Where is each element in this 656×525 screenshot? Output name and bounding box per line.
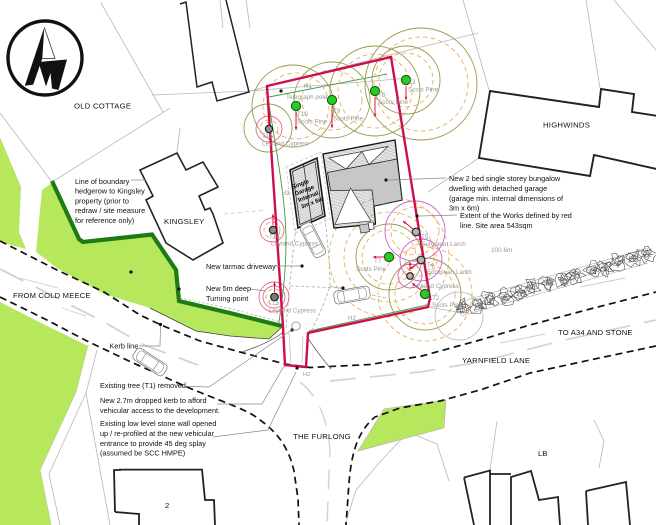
- svg-text:T9: T9: [333, 108, 341, 115]
- svg-text:Turning point: Turning point: [206, 294, 248, 303]
- svg-text:Leyland Cypress: Leyland Cypress: [412, 283, 459, 290]
- svg-text:(assumed be SCC HMPE): (assumed be SCC HMPE): [100, 449, 185, 458]
- svg-text:H2: H2: [303, 372, 310, 378]
- svg-text:T5: T5: [421, 234, 429, 241]
- svg-text:up / re-profiled at the new ve: up / re-profiled at the new vehicular: [100, 429, 215, 438]
- svg-text:T15: T15: [262, 133, 273, 140]
- svg-text:Line of boundary: Line of boundary: [75, 177, 130, 186]
- svg-text:redraw / site measure: redraw / site measure: [75, 206, 145, 215]
- svg-text:Scots Pine: Scots Pine: [333, 116, 364, 123]
- svg-text:Leyland Cypress: Leyland Cypress: [271, 241, 318, 248]
- svg-text:Scots Pine: Scots Pine: [378, 99, 409, 106]
- svg-text:T2: T2: [432, 295, 440, 302]
- svg-text:hedgerow to Kingsley: hedgerow to Kingsley: [75, 187, 145, 196]
- svg-text:for reference only): for reference only): [75, 216, 134, 225]
- svg-text:H1: H1: [304, 83, 313, 90]
- svg-text:100.6m: 100.6m: [491, 247, 512, 254]
- svg-text:Kerb line: Kerb line: [110, 342, 139, 351]
- svg-text:T14: T14: [269, 234, 280, 241]
- svg-text:HIGHWINDS: HIGHWINDS: [543, 121, 590, 130]
- svg-text:YARNFIELD LANE: YARNFIELD LANE: [462, 356, 530, 365]
- svg-text:Scots Pine: Scots Pine: [356, 266, 387, 273]
- svg-text:dwelling with detached garage: dwelling with detached garage: [449, 184, 547, 193]
- svg-text:Leyland Cypress: Leyland Cypress: [269, 308, 316, 315]
- svg-text:T3: T3: [408, 79, 416, 86]
- svg-text:Existing tree (T1) removed: Existing tree (T1) removed: [100, 381, 186, 390]
- svg-text:T10: T10: [297, 111, 308, 118]
- svg-text:TO A34 AND STONE: TO A34 AND STONE: [558, 328, 633, 337]
- svg-text:Existing low level stone wall: Existing low level stone wall opened: [100, 419, 216, 428]
- svg-text:H2: H2: [348, 315, 357, 322]
- svg-text:T7: T7: [374, 258, 382, 265]
- svg-text:European Larch: European Larch: [421, 241, 466, 248]
- svg-text:property (prior to: property (prior to: [75, 196, 129, 205]
- svg-text:LB: LB: [538, 449, 547, 458]
- svg-text:FROM COLD MEECE: FROM COLD MEECE: [13, 291, 91, 300]
- svg-text:New tarmac driveway: New tarmac driveway: [206, 262, 276, 271]
- svg-text:KINGSLEY: KINGSLEY: [164, 217, 204, 226]
- svg-text:entrance to provide 45 deg spl: entrance to provide 45 deg splay: [100, 439, 206, 448]
- svg-text:OLD COTTAGE: OLD COTTAGE: [74, 102, 131, 111]
- svg-text:New 2.7m dropped kerb to affor: New 2.7m dropped kerb to afford: [100, 396, 207, 405]
- svg-text:Extent of the Works defined by: Extent of the Works defined by red: [460, 211, 572, 220]
- svg-text:T4: T4: [427, 262, 435, 269]
- svg-text:Scots Pine: Scots Pine: [432, 302, 463, 309]
- svg-text:line. Site area 543sqm: line. Site area 543sqm: [460, 221, 533, 230]
- svg-text:H3: H3: [282, 190, 291, 197]
- svg-text:2: 2: [165, 501, 169, 510]
- svg-text:European Larch: European Larch: [427, 269, 472, 276]
- svg-text:T8: T8: [378, 92, 386, 99]
- svg-text:vehicular access to the develo: vehicular access to the development.: [100, 406, 220, 415]
- svg-text:New 5m deep: New 5m deep: [206, 284, 251, 293]
- svg-text:Telegraph pole: Telegraph pole: [286, 94, 328, 101]
- svg-text:Leyland Cypress: Leyland Cypress: [262, 141, 309, 148]
- svg-text:New 2 bed single storey bungal: New 2 bed single storey bungalow: [449, 174, 561, 183]
- svg-text:Scots Pine: Scots Pine: [408, 87, 439, 94]
- svg-text:THE FURLONG: THE FURLONG: [293, 432, 351, 441]
- svg-text:Scots Pine: Scots Pine: [297, 119, 328, 126]
- svg-text:T13: T13: [268, 300, 279, 307]
- svg-text:(garage min. internal dimensio: (garage min. internal dimensions of: [449, 194, 564, 203]
